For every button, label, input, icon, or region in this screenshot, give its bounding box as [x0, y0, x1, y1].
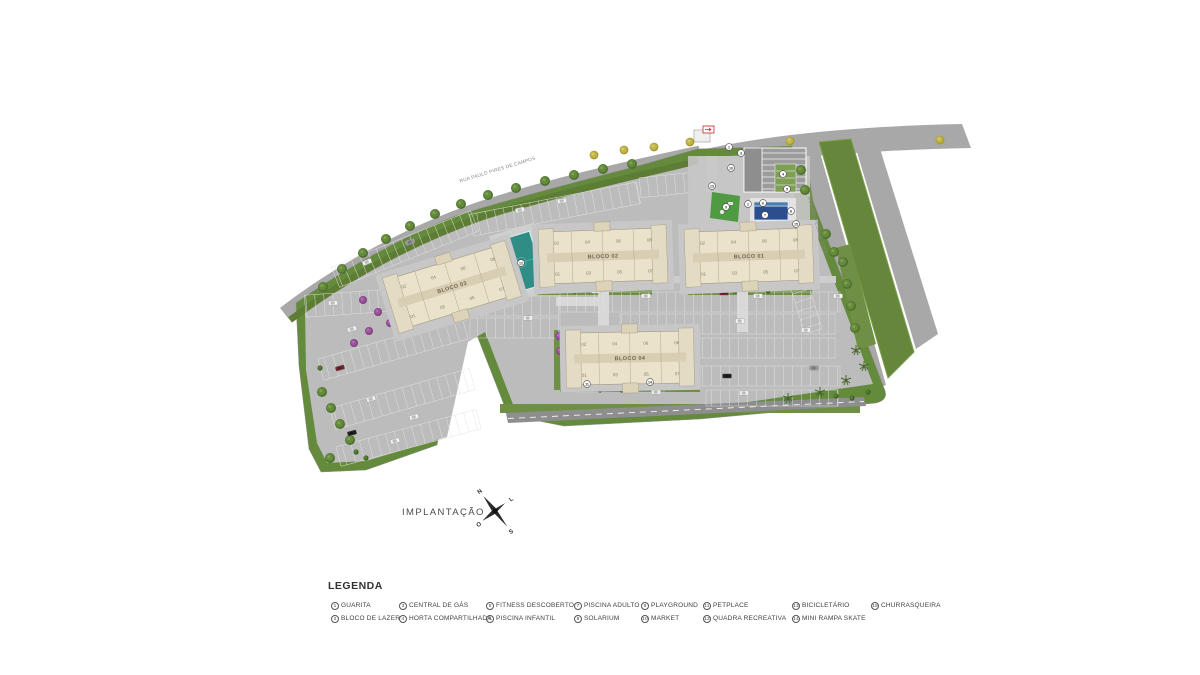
site-plan-page: 02 04 06 08 01 03 05 07 BLOCO 03 02 04 0…	[0, 0, 1200, 675]
marker-14: 14	[647, 379, 654, 386]
compass-north-label: N	[477, 488, 484, 495]
tree-icon	[365, 327, 373, 335]
legend-column: 5FITNESS DESCOBERTO 6PISCINA INFANTIL	[486, 602, 574, 628]
svg-text:3: 3	[740, 152, 742, 156]
building-bloco-01: 02 04 06 08 01 03 05 07 BLOCO 01	[678, 220, 820, 295]
pool-adult	[754, 206, 788, 220]
legend-item-label: QUADRA RECREATIVA	[713, 615, 786, 622]
unit-label: 05	[644, 372, 650, 377]
marker-4: 4	[780, 171, 787, 178]
marker-6: 6	[760, 200, 767, 207]
building-name: BLOCO 04	[615, 356, 646, 363]
legend-column: 15CHURRASQUEIRA	[871, 602, 941, 615]
tree-icon	[650, 143, 659, 152]
unit-label: 03	[613, 372, 619, 377]
tree-icon	[350, 339, 358, 347]
unit-label: 08	[647, 237, 653, 242]
svg-text:14: 14	[648, 381, 652, 385]
tree-icon	[359, 296, 367, 304]
unit-label: 05	[617, 269, 623, 274]
legend-item: 2BLOCO DE LAZER	[331, 615, 400, 623]
legend-item-label: HORTA COMPARTILHADA	[409, 615, 492, 622]
compass-east-label: L	[508, 496, 515, 503]
car-icon	[753, 294, 762, 299]
car-icon	[739, 391, 748, 396]
legend-item-label: GUARITA	[341, 602, 371, 609]
compass-rose: N L S O	[455, 478, 535, 548]
legend-number-badge: 4	[399, 615, 407, 623]
tree-icon	[374, 308, 382, 316]
tree-icon	[381, 234, 391, 244]
unit-label: 02	[554, 241, 560, 246]
tree-icon	[345, 435, 355, 445]
legend-item: 14MINI RAMPA SKATE	[792, 615, 866, 623]
unit-label: 04	[731, 239, 737, 244]
legend-item-label: SOLARIUM	[584, 615, 620, 622]
legend-item-label: CENTRAL DE GÁS	[409, 602, 468, 609]
tree-icon	[786, 137, 795, 146]
bush-icon	[833, 393, 838, 398]
svg-text:7: 7	[764, 214, 766, 218]
legend-item-label: CHURRASQUEIRA	[881, 602, 941, 609]
building-name: BLOCO 02	[588, 253, 619, 260]
bush-icon	[317, 365, 322, 370]
compass-hub	[493, 509, 498, 514]
marker-12: 12	[518, 260, 525, 267]
svg-text:11: 11	[585, 383, 589, 387]
svg-text:4: 4	[782, 173, 784, 177]
compass-west-label: O	[476, 521, 484, 529]
svg-text:2: 2	[747, 203, 749, 207]
tree-icon	[405, 221, 415, 231]
legend-heading: LEGENDA	[328, 580, 988, 592]
entrance-marker	[703, 126, 714, 133]
marker-7: 7	[762, 212, 769, 219]
tree-icon	[829, 247, 839, 257]
tree-icon	[326, 403, 336, 413]
building-bloco-02: 02 04 06 08 01 03 05 07 BLOCO 02	[532, 220, 674, 295]
marker-5: 5	[784, 186, 791, 193]
legend-item-label: BICICLETÁRIO	[802, 602, 850, 609]
legend-item-label: FITNESS DESCOBERTO	[496, 602, 574, 609]
car-icon	[557, 198, 567, 204]
legend-number-badge: 15	[871, 602, 879, 610]
legend-item-label: PETPLACE	[713, 602, 749, 609]
unit-label: 05	[763, 269, 769, 274]
svg-text:6: 6	[762, 202, 764, 206]
legend-item: 9PLAYGROUND	[641, 602, 698, 610]
car-icon	[641, 294, 650, 299]
tree-icon	[317, 387, 327, 397]
car-icon	[523, 316, 532, 321]
svg-text:10: 10	[729, 167, 733, 171]
legend-number-badge: 3	[399, 602, 407, 610]
unit-label: 01	[555, 271, 561, 276]
marker-11: 11	[584, 381, 591, 388]
svg-text:1: 1	[728, 146, 730, 150]
svg-text:5: 5	[786, 188, 788, 192]
svg-text:15: 15	[794, 223, 798, 227]
legend-column: 13BICICLETÁRIO 14MINI RAMPA SKATE	[792, 602, 866, 628]
legend-item: 5FITNESS DESCOBERTO	[486, 602, 574, 610]
legend: LEGENDA 1GUARITA 2BLOCO DE LAZER 3CENTRA…	[328, 580, 988, 640]
marker-9: 9	[723, 204, 730, 211]
street-label-top: RUA PAULO PIRES DE CAMPOS	[459, 156, 536, 185]
legend-item: 10MARKET	[641, 615, 698, 623]
unit-label: 04	[612, 341, 618, 346]
legend-item-label: PLAYGROUND	[651, 602, 698, 609]
svg-text:9: 9	[725, 206, 727, 210]
tree-icon	[838, 257, 848, 267]
tree-icon	[627, 159, 637, 169]
car-icon	[833, 294, 842, 299]
legend-number-badge: 5	[486, 602, 494, 610]
car-icon	[809, 366, 818, 371]
marker-1: 1	[726, 144, 733, 151]
tree-icon	[846, 301, 856, 311]
legend-number-badge: 2	[331, 615, 339, 623]
bush-icon	[849, 395, 854, 400]
legend-column: 1GUARITA 2BLOCO DE LAZER	[331, 602, 400, 628]
unit-label: 04	[585, 239, 591, 244]
tree-icon	[456, 199, 466, 209]
car-icon	[328, 300, 337, 305]
legend-column: 7PISCINA ADULTO 8SOLARIUM	[574, 602, 640, 628]
legend-item: 11PETPLACE	[703, 602, 786, 610]
unit-label: 03	[586, 270, 592, 275]
legend-number-badge: 9	[641, 602, 649, 610]
tree-icon	[430, 209, 440, 219]
site-plan: 02 04 06 08 01 03 05 07 BLOCO 03 02 04 0…	[0, 0, 1200, 675]
tree-icon	[511, 183, 521, 193]
legend-item-label: PISCINA ADULTO	[584, 602, 640, 609]
tree-icon	[686, 138, 695, 147]
unit-label: 07	[648, 268, 654, 273]
marker-13: 13	[709, 183, 716, 190]
legend-item-label: MARKET	[651, 615, 679, 622]
legend-item: 3CENTRAL DE GÁS	[399, 602, 492, 610]
building-name: BLOCO 01	[734, 253, 765, 260]
unit-label: 01	[582, 373, 588, 378]
legend-item-label: MINI RAMPA SKATE	[802, 615, 866, 622]
svg-text:8: 8	[790, 210, 792, 214]
pool-kids	[754, 202, 788, 206]
playground-equipment	[720, 210, 724, 214]
legend-column: 11PETPLACE 12QUADRA RECREATIVA	[703, 602, 786, 628]
legend-number-badge: 7	[574, 602, 582, 610]
tree-icon	[936, 136, 945, 145]
car-icon	[735, 319, 744, 324]
legend-number-badge: 10	[641, 615, 649, 623]
unit-label: 06	[762, 238, 768, 243]
tree-icon	[569, 170, 579, 180]
marker-15: 15	[793, 221, 800, 228]
legend-number-badge: 13	[792, 602, 800, 610]
tree-icon	[325, 453, 335, 463]
tree-icon	[842, 279, 852, 289]
marker-10: 10	[728, 165, 735, 172]
tree-icon	[590, 151, 599, 160]
legend-item: 1GUARITA	[331, 602, 400, 610]
unit-label: 06	[643, 341, 649, 346]
unit-label: 07	[675, 371, 681, 376]
compass-south-label: S	[508, 529, 515, 536]
tree-icon	[540, 176, 550, 186]
unit-label: 02	[700, 241, 706, 246]
unit-label: 08	[793, 237, 799, 242]
tree-icon	[800, 185, 810, 195]
tree-icon	[598, 164, 608, 174]
tree-icon	[620, 146, 629, 155]
unit-label: 08	[674, 340, 680, 345]
tree-icon	[483, 190, 493, 200]
unit-label: 03	[732, 270, 738, 275]
marker-2: 2	[745, 201, 752, 208]
tree-icon	[850, 323, 860, 333]
tree-icon	[337, 264, 347, 274]
legend-item: 7PISCINA ADULTO	[574, 602, 640, 610]
unit-label: 07	[794, 268, 800, 273]
car-icon	[801, 328, 810, 333]
tree-icon	[358, 248, 368, 258]
bush-icon	[363, 455, 368, 460]
legend-column: 3CENTRAL DE GÁS 4HORTA COMPARTILHADA	[399, 602, 492, 628]
legend-item: 15CHURRASQUEIRA	[871, 602, 941, 610]
legend-number-badge: 1	[331, 602, 339, 610]
legend-number-badge: 11	[703, 602, 711, 610]
unit-label: 06	[616, 238, 622, 243]
bush-icon	[353, 449, 358, 454]
svg-text:12: 12	[519, 262, 523, 266]
legend-number-badge: 6	[486, 615, 494, 623]
tree-icon	[318, 282, 328, 292]
legend-item-label: PISCINA INFANTIL	[496, 615, 555, 622]
svg-text:13: 13	[710, 185, 714, 189]
legend-item: 4HORTA COMPARTILHADA	[399, 615, 492, 623]
bush-icon	[865, 389, 870, 394]
legend-item: 8SOLARIUM	[574, 615, 640, 623]
tree-icon	[335, 419, 345, 429]
legend-item: 12QUADRA RECREATIVA	[703, 615, 786, 623]
legend-column: 9PLAYGROUND 10MARKET	[641, 602, 698, 628]
legend-item-label: BLOCO DE LAZER	[341, 615, 400, 622]
unit-label: 02	[581, 342, 587, 347]
tree-icon	[796, 165, 806, 175]
leisure-building-wing	[744, 148, 762, 192]
legend-number-badge: 8	[574, 615, 582, 623]
legend-item: 6PISCINA INFANTIL	[486, 615, 574, 623]
legend-number-badge: 14	[792, 615, 800, 623]
legend-item: 13BICICLETÁRIO	[792, 602, 866, 610]
marker-3: 3	[738, 150, 745, 157]
legend-number-badge: 12	[703, 615, 711, 623]
building-bloco-04: 02 04 06 08 01 03 05 07 BLOCO 04	[559, 323, 700, 394]
car-icon	[722, 374, 731, 379]
unit-label: 01	[701, 271, 707, 276]
marker-8: 8	[788, 208, 795, 215]
